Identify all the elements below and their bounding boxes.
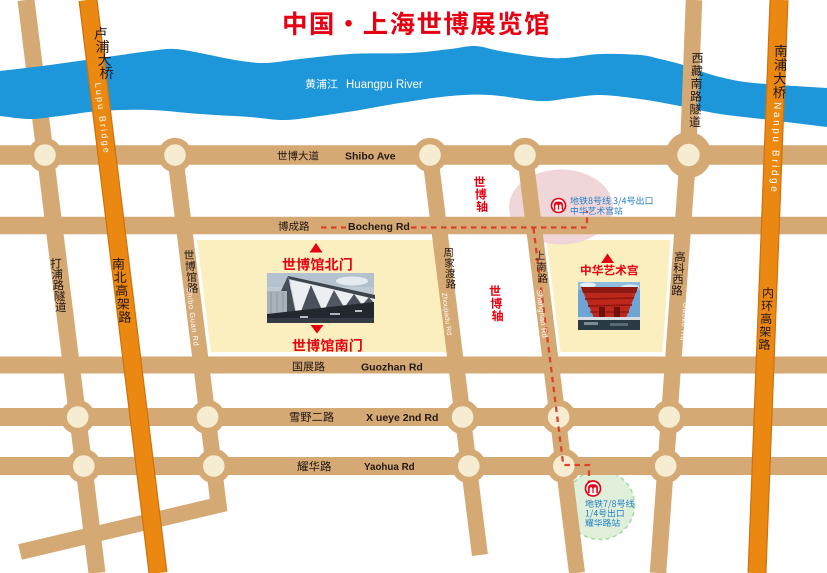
svg-text:Huangpu River: Huangpu River bbox=[346, 79, 423, 91]
svg-text:Guozhan Rd: Guozhan Rd bbox=[361, 362, 423, 374]
svg-text:Bocheng Rd: Bocheng Rd bbox=[348, 221, 410, 233]
svg-text:Yaohua Rd: Yaohua Rd bbox=[364, 462, 415, 473]
svg-text:X ueye 2nd Rd: X ueye 2nd Rd bbox=[366, 412, 438, 424]
svg-text:Shibo Ave: Shibo Ave bbox=[345, 151, 396, 163]
